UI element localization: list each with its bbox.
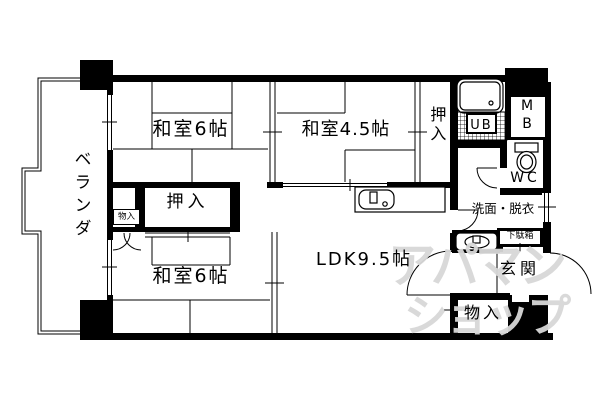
room-label-storage-bottom: 物入	[456, 304, 510, 322]
room-label-oshiire-top: 押入	[427, 106, 445, 144]
kitchen-counter	[355, 187, 445, 212]
floorplan: アパマン ショップ ベランダ 和室6帖 和室4.5帖 押入 UB MB WC 洗…	[0, 0, 600, 400]
bathtub-icon	[457, 79, 503, 113]
room-label-washitsu6-bottom: 和室6帖	[112, 266, 270, 288]
room-label-oshiire-middle: 押入	[145, 193, 230, 213]
room-label-washitsu45: 和室4.5帖	[275, 120, 417, 141]
room-label-washroom: 洗面・脱衣	[459, 202, 547, 216]
room-label-unit-bath: UB	[466, 113, 497, 134]
room-label-storage-small: 物入	[113, 209, 140, 225]
room-label-toilet: WC	[506, 170, 544, 186]
room-label-ldk: LDK9.5帖	[283, 250, 445, 271]
wc-door	[477, 168, 497, 188]
storage-double-doors	[113, 233, 141, 250]
toilet-icon	[515, 143, 538, 173]
room-label-veranda: ベランダ	[70, 150, 90, 242]
room-label-shoe-cabinet: 下駄箱	[499, 231, 541, 241]
room-label-meter-box: MB	[519, 98, 535, 134]
room-label-washitsu6-top: 和室6帖	[112, 119, 270, 141]
room-label-entrance: 玄関	[496, 260, 544, 278]
kitchen-sink-icon	[359, 190, 394, 209]
